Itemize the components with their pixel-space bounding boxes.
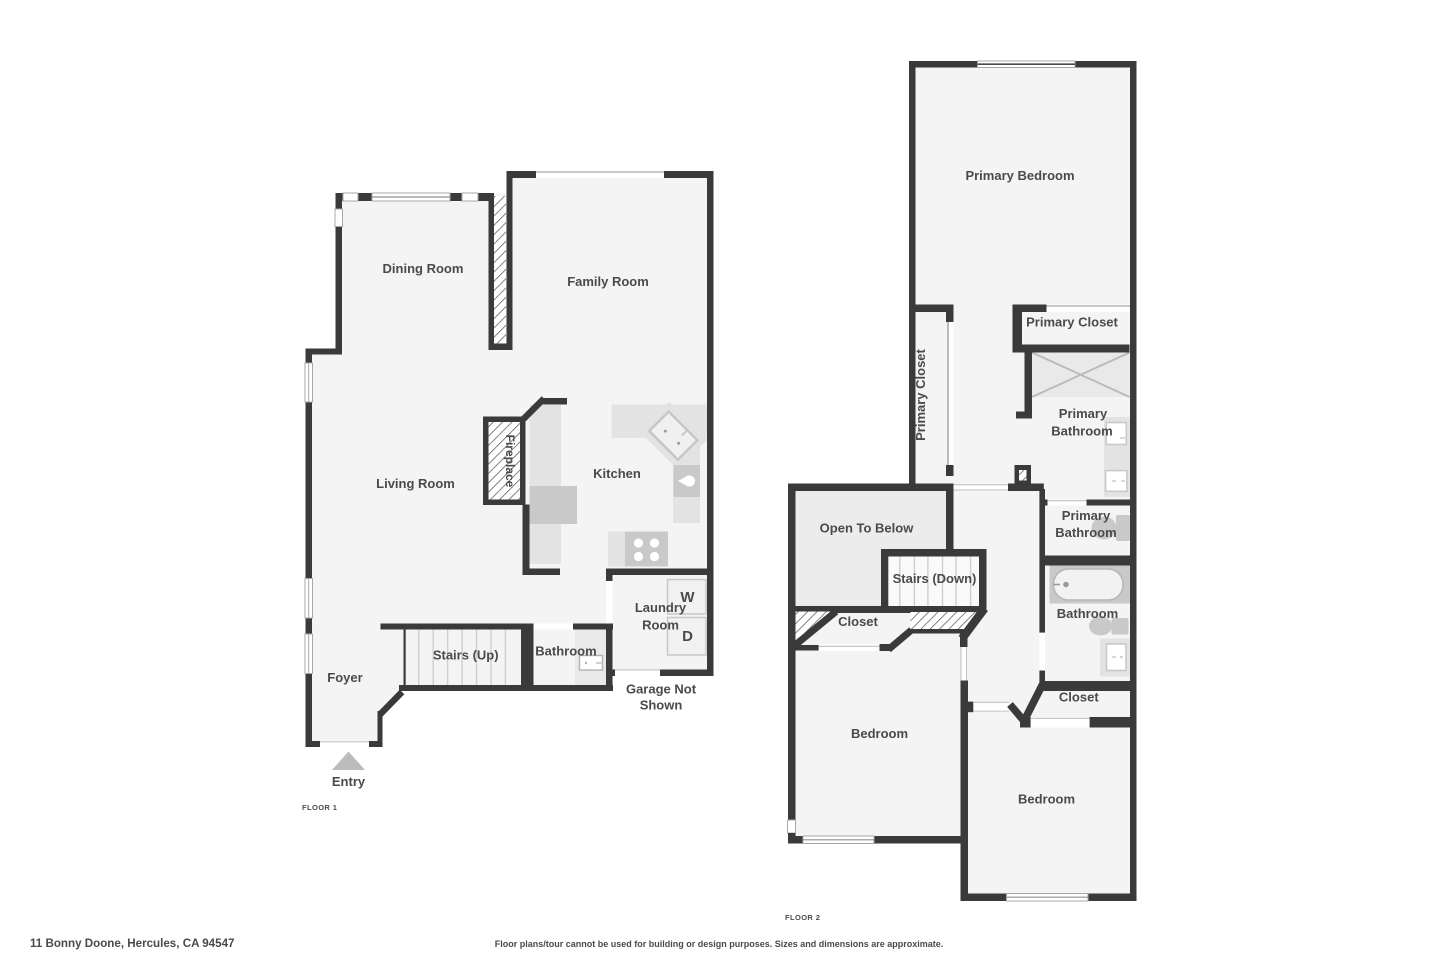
- svg-text:Open To Below: Open To Below: [820, 521, 915, 536]
- svg-text:Living Room: Living Room: [376, 476, 455, 491]
- svg-text:Primary: Primary: [1062, 508, 1111, 523]
- svg-text:D: D: [682, 628, 693, 645]
- svg-text:Bathroom: Bathroom: [535, 644, 596, 659]
- svg-text:Fireplace: Fireplace: [503, 435, 517, 488]
- svg-text:Entry: Entry: [332, 774, 366, 789]
- svg-text:Primary Closet: Primary Closet: [1026, 315, 1118, 330]
- svg-text:Primary Closet: Primary Closet: [913, 348, 928, 440]
- svg-text:Bedroom: Bedroom: [851, 726, 908, 741]
- svg-text:Bathroom: Bathroom: [1051, 424, 1112, 439]
- svg-text:FLOOR 1: FLOOR 1: [302, 803, 337, 812]
- svg-text:Dining Room: Dining Room: [383, 261, 464, 276]
- svg-text:Bathroom: Bathroom: [1055, 525, 1116, 540]
- svg-text:Closet: Closet: [1059, 690, 1099, 705]
- svg-text:Stairs (Down): Stairs (Down): [893, 571, 977, 586]
- svg-text:Stairs (Up): Stairs (Up): [433, 648, 499, 663]
- svg-text:Room: Room: [642, 618, 679, 633]
- svg-text:Primary: Primary: [1059, 406, 1108, 421]
- svg-text:Kitchen: Kitchen: [593, 466, 641, 481]
- svg-text:Bathroom: Bathroom: [1057, 606, 1118, 621]
- svg-text:Bedroom: Bedroom: [1018, 792, 1075, 807]
- svg-text:Closet: Closet: [838, 614, 878, 629]
- svg-text:Family Room: Family Room: [567, 274, 649, 289]
- svg-text:Floor plans/tour cannot be use: Floor plans/tour cannot be used for buil…: [495, 939, 944, 949]
- svg-text:FLOOR 2: FLOOR 2: [785, 913, 820, 922]
- svg-text:Laundry: Laundry: [635, 600, 687, 615]
- svg-text:Shown: Shown: [640, 698, 683, 713]
- svg-text:Foyer: Foyer: [327, 670, 362, 685]
- svg-text:Primary Bedroom: Primary Bedroom: [965, 168, 1074, 183]
- svg-text:Garage Not: Garage Not: [626, 682, 697, 697]
- svg-text:11 Bonny Doone, Hercules, CA 9: 11 Bonny Doone, Hercules, CA 94547: [30, 937, 234, 950]
